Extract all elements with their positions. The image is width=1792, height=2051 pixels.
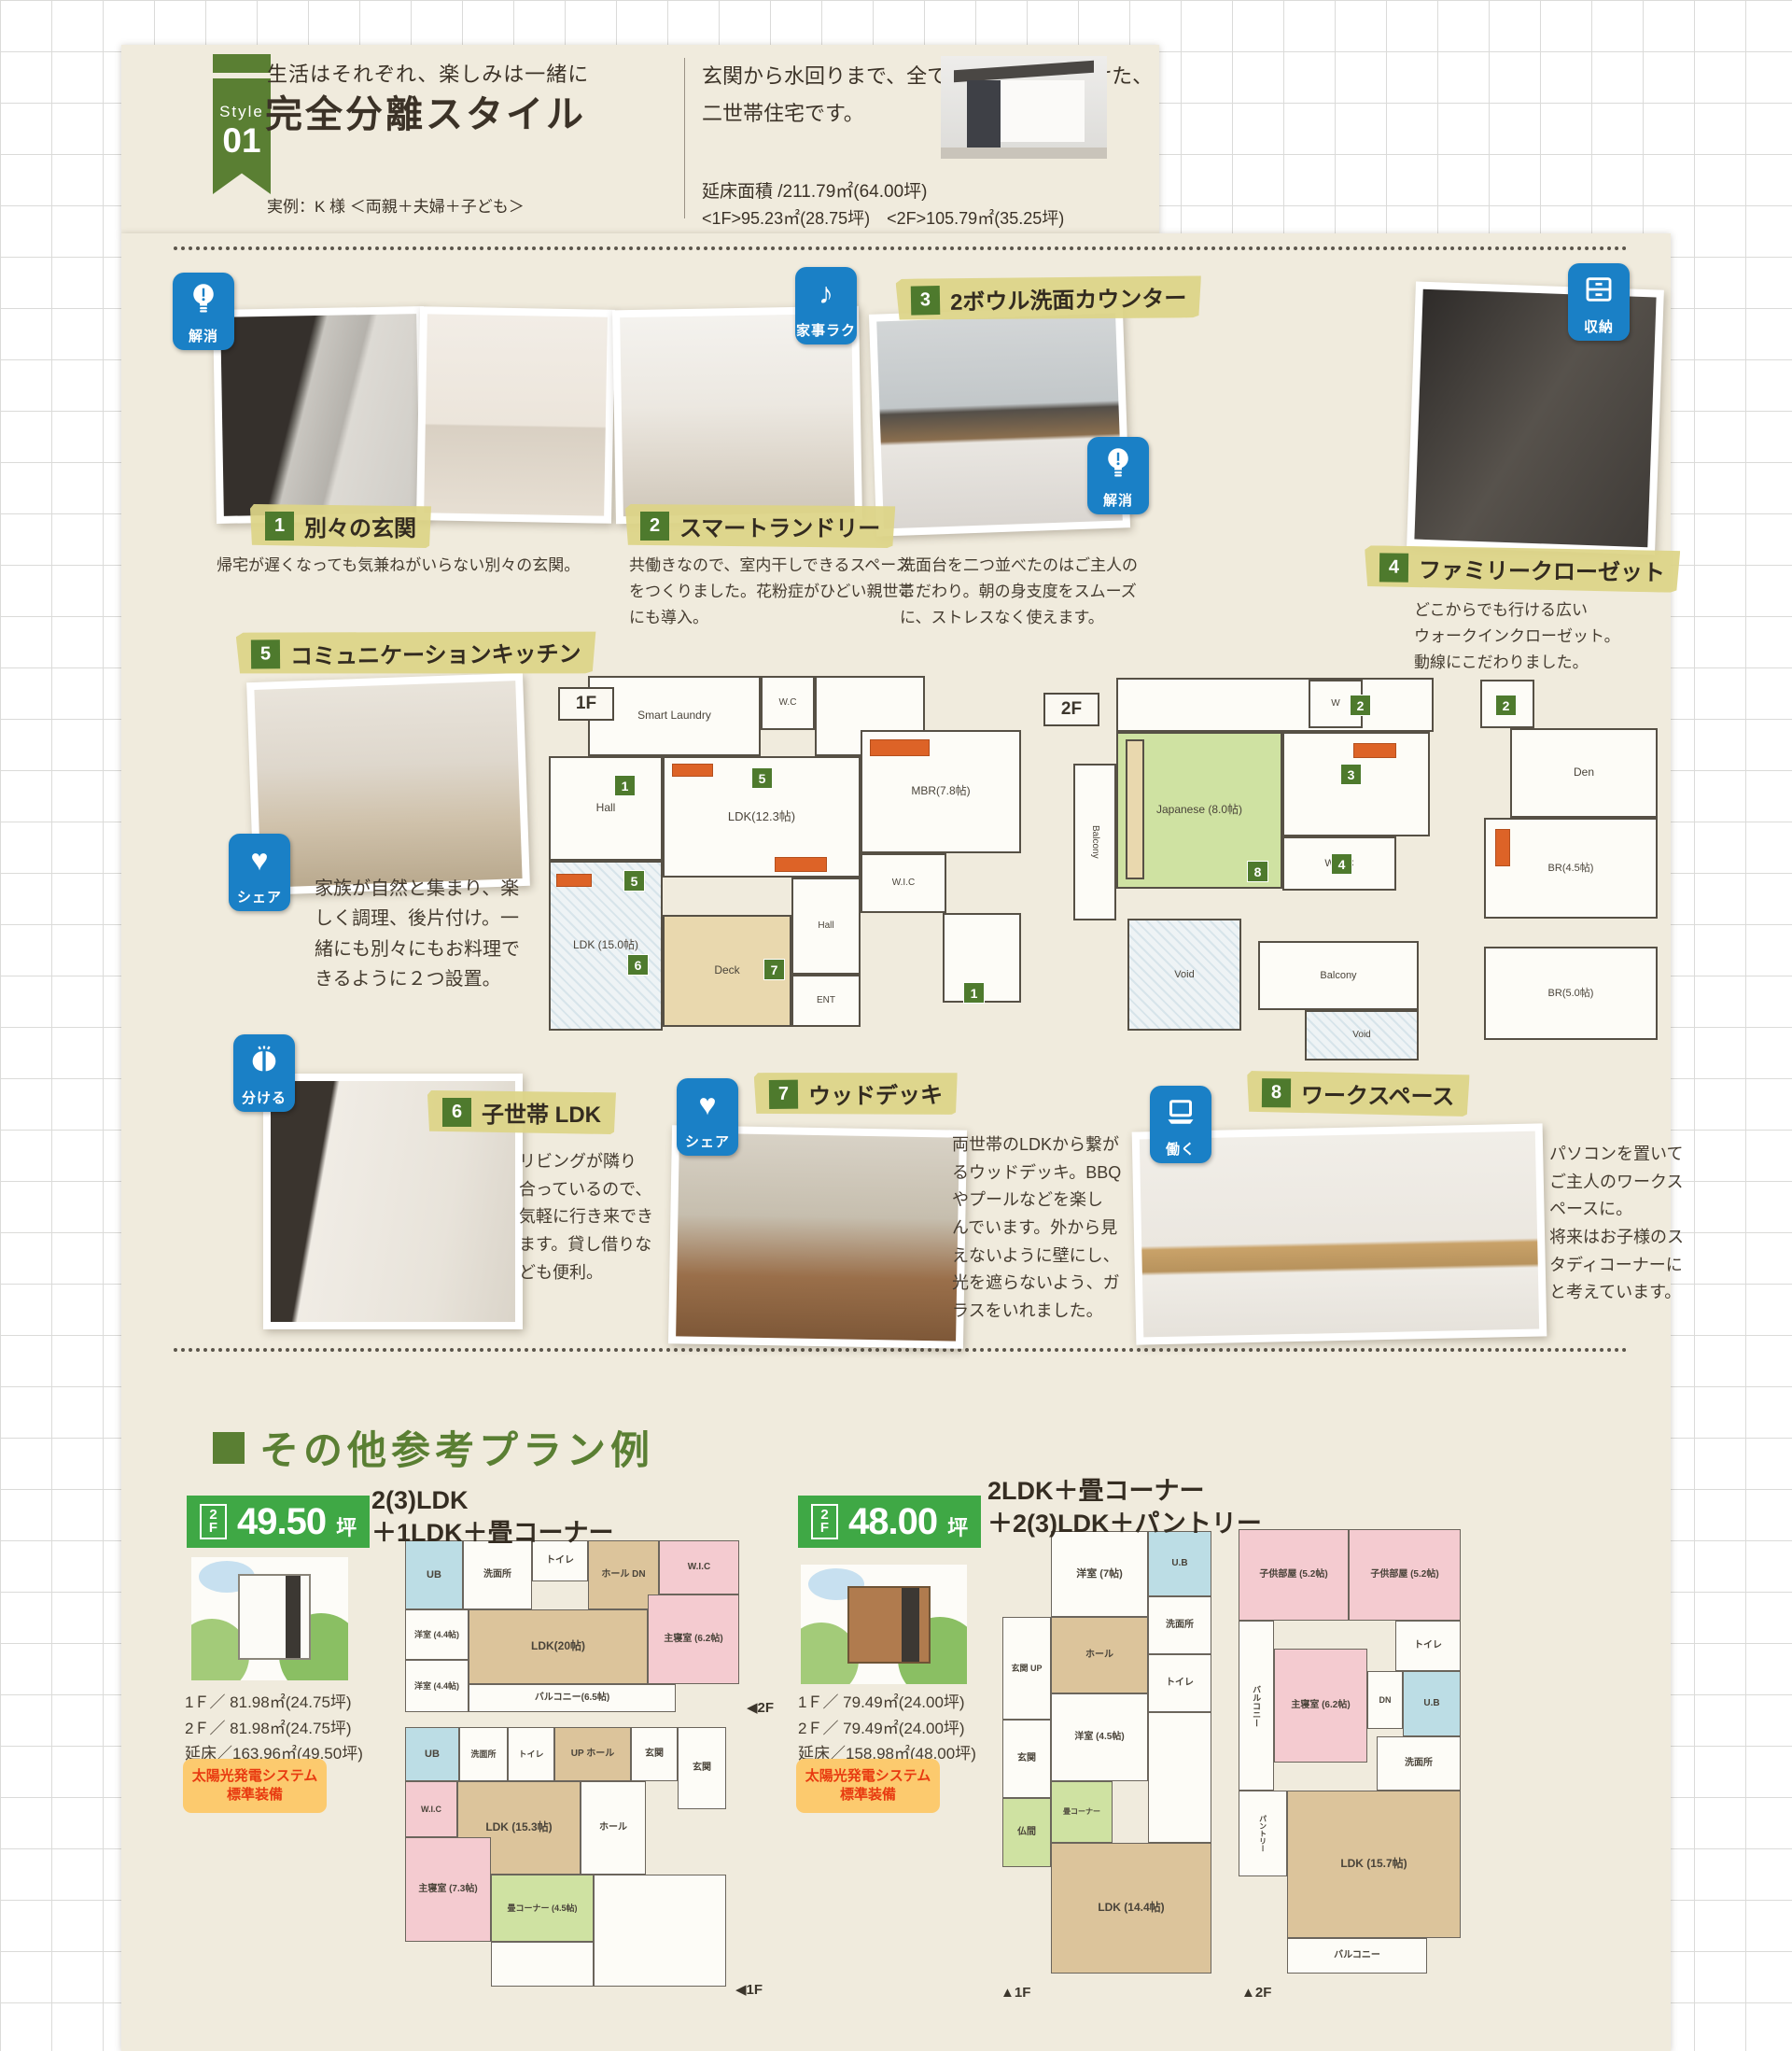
room-U.B: U.B xyxy=(1403,1671,1461,1736)
plan-b-title: 2LDK＋畳コーナー ＋2(3)LDK＋パントリー xyxy=(987,1475,1262,1540)
feature-title: 子世帯 LDK xyxy=(482,1096,601,1129)
room-Hall: Hall xyxy=(791,878,861,975)
header-divider xyxy=(684,58,685,218)
plan-marker-6: 6 xyxy=(627,954,649,976)
room-LDK (15.7帖): LDK (15.7帖) xyxy=(1287,1791,1461,1938)
room-バルコニー(6.5帖): バルコニー(6.5帖) xyxy=(469,1684,676,1712)
page-title: 完全分離スタイル xyxy=(265,84,586,138)
feature-number: 3 xyxy=(911,286,941,316)
photo-entrance-child xyxy=(424,314,608,515)
room-DN: DN xyxy=(1367,1671,1403,1729)
room-玄関: 玄関 xyxy=(678,1727,726,1809)
plan-block xyxy=(1495,829,1510,866)
feature3-kaishou-badge: 解消 xyxy=(1087,437,1149,514)
feature2-label: 2 スマートランドリー xyxy=(625,504,895,548)
room-UB: UB xyxy=(405,1727,459,1781)
room-洗面所: 洗面所 xyxy=(1377,1736,1461,1791)
feature1-kaishou-badge: 解消 xyxy=(173,273,234,350)
plan-marker-5: 5 xyxy=(751,767,773,789)
room-W.I.C: W.I.C xyxy=(861,853,946,913)
feature5-share-badge: ♥ シェア xyxy=(229,834,290,911)
split-icon xyxy=(233,1039,295,1082)
room-洋室 (4.5帖): 洋室 (4.5帖) xyxy=(1051,1693,1148,1781)
room-洋室 (7帖): 洋室 (7帖) xyxy=(1051,1531,1148,1617)
style-ribbon-tab xyxy=(213,54,271,73)
plan-block xyxy=(1148,1712,1211,1843)
feature-title: ワークスペース xyxy=(1301,1076,1455,1110)
room-Balcony: Balcony xyxy=(1258,941,1419,1010)
plan-a-tsubo-badge: 2F 49.50 坪 xyxy=(187,1496,370,1548)
plan-a-1f-floorplan: UB洗面所トイレUP ホール玄関玄関W.I.CLDK (15.3帖)ホール主寝室… xyxy=(403,1725,728,1988)
room-UB: UB xyxy=(405,1540,463,1609)
room-洗面所: 洗面所 xyxy=(459,1727,508,1781)
room-LDK(20帖): LDK(20帖) xyxy=(469,1609,648,1684)
photo-entrance-parent xyxy=(220,314,420,516)
plan-b-2f-floorplan: 子供部屋 (5.2帖)子供部屋 (5.2帖)トイレバルコニー主寝室 (6.2帖)… xyxy=(1237,1527,1463,1977)
feature-title: コミュニケーションキッチン xyxy=(290,635,581,670)
feature-title: ファミリークローゼット xyxy=(1419,552,1665,587)
room-子供部屋 (5.2帖): 子供部屋 (5.2帖) xyxy=(1349,1529,1461,1621)
house-accent-shape xyxy=(967,80,1001,155)
room-玄関: 玄関 xyxy=(631,1727,678,1781)
feature8-hataraku-badge: 働く xyxy=(1150,1086,1211,1163)
door-shape xyxy=(902,1588,919,1662)
feature-number: 7 xyxy=(769,1080,798,1109)
floorplan-2f-label: 2F xyxy=(1043,693,1099,726)
lightbulb-icon xyxy=(1087,442,1149,485)
room-洗面所: 洗面所 xyxy=(463,1540,532,1609)
feature-number: 4 xyxy=(1379,553,1408,582)
feature4-shuunou-badge: 収納 xyxy=(1568,263,1630,341)
plan-b-1f-mark: ▲1F xyxy=(1001,1985,1030,2001)
plan-marker-1: 1 xyxy=(963,982,985,1004)
room-洋室 (4.4帖): 洋室 (4.4帖) xyxy=(405,1660,469,1712)
photo-frame xyxy=(213,306,427,524)
room-玄関: 玄関 xyxy=(1002,1720,1051,1798)
plan-a-1f-mark: ◀1F xyxy=(735,1981,763,1998)
plan-block xyxy=(1126,739,1144,879)
plan-b-tsubo-value: 48.00 xyxy=(848,1501,937,1543)
room-U.B: U.B xyxy=(1148,1531,1211,1596)
room-畳コーナー: 畳コーナー xyxy=(1051,1781,1113,1843)
laptop-icon xyxy=(1150,1090,1211,1133)
feature-number: 5 xyxy=(251,639,280,668)
plan-a-tsubo-unit: 坪 xyxy=(336,1511,357,1541)
badge-label: 働く xyxy=(1166,1139,1196,1159)
badge-label: 分ける xyxy=(242,1088,287,1107)
door-shape xyxy=(286,1576,301,1657)
room-Void: Void xyxy=(1305,1010,1419,1061)
room-子供部屋 (5.2帖): 子供部屋 (5.2帖) xyxy=(1239,1529,1349,1621)
house-roof-shape xyxy=(954,61,1094,82)
music-note-icon: ♪ xyxy=(795,272,857,315)
plan-b-areas: 1Ｆ／ 79.49㎡(24.00坪) 2Ｆ／ 79.49㎡(24.00坪) 延床… xyxy=(798,1690,976,1767)
house-shape xyxy=(847,1586,931,1664)
header-floor-areas: <1F>95.23㎡(28.75坪) <2F>105.79㎡(35.25坪) xyxy=(702,205,1064,230)
plan-b-solar-badge: 太陽光発電システム 標準装備 xyxy=(796,1759,940,1813)
feature1-caption: 帰宅が遅くなっても気兼ねがいらない別々の玄関。 xyxy=(217,553,683,579)
badge-label: 解消 xyxy=(1103,490,1133,510)
plan-a-areas: 1Ｆ／ 81.98㎡(24.75坪) 2Ｆ／ 81.98㎡(24.75坪) 延床… xyxy=(185,1690,363,1767)
room-洗面所: 洗面所 xyxy=(1148,1596,1211,1654)
feature6-caption: リビングが隣り 合っているので、 気軽に行き来でき ます。貸し借りな ども便利。 xyxy=(519,1148,687,1286)
plan-marker-7: 7 xyxy=(763,959,785,980)
room-主寝室 (7.3帖): 主寝室 (7.3帖) xyxy=(405,1837,491,1942)
badge-label: シェア xyxy=(685,1131,730,1151)
section-heading: その他参考プラン例 xyxy=(213,1419,654,1476)
feature5-caption: 家族が自然と集まり、楽 しく調理、後片付け。一 緒にも別々にもお料理で きるよう… xyxy=(315,874,613,995)
dotted-divider-top xyxy=(174,246,1628,250)
heading-square-icon xyxy=(213,1432,245,1464)
room-バルコニー: バルコニー xyxy=(1239,1621,1274,1791)
plan-block xyxy=(1116,678,1434,732)
ribbon-style-word: Style xyxy=(213,103,271,121)
feature-title: スマートランドリー xyxy=(679,510,880,542)
room-主寝室 (6.2帖): 主寝室 (6.2帖) xyxy=(648,1594,739,1684)
feature-title: 2ボウル洗面カウンター xyxy=(950,279,1187,316)
room-W.C: W.C xyxy=(761,676,815,730)
room-玄関 UP: 玄関 UP xyxy=(1002,1617,1051,1720)
room-Void: Void xyxy=(1127,919,1241,1031)
plan-block xyxy=(491,1942,594,1987)
dotted-divider-bottom xyxy=(174,1348,1628,1352)
heart-icon: ♥ xyxy=(229,838,290,881)
plan-block xyxy=(672,764,713,777)
feature2-kajiraku-badge: ♪ 家事ラク xyxy=(795,267,857,344)
plan-b-area-1f: 1Ｆ／ 79.49㎡(24.00坪) xyxy=(798,1690,976,1716)
plan-b-1f-floorplan: 洋室 (7帖)U.B洗面所玄関 UPホールトイレ玄関仏間洋室 (4.5帖)畳コー… xyxy=(1001,1529,1213,1975)
plan-b-2f-mark: ▲2F xyxy=(1241,1985,1271,2001)
room-バルコニー: バルコニー xyxy=(1287,1938,1427,1974)
feature1-label: 1 別々の玄関 xyxy=(250,504,431,548)
plan-a-title: 2(3)LDK ＋1LDK＋畳コーナー xyxy=(371,1484,614,1550)
badge-label: 収納 xyxy=(1584,316,1614,336)
badge-label: 家事ラク xyxy=(796,320,856,340)
feature4-caption: どこからでも行ける広い ウォークインクローゼット。 動線にこだわりました。 xyxy=(1414,597,1694,676)
house-ground-shape xyxy=(941,148,1107,159)
photo-wood-deck xyxy=(676,1132,959,1341)
plan-b-house-illustration xyxy=(801,1565,967,1684)
room-ホール: ホール xyxy=(1051,1617,1148,1693)
room-Balcony: Balcony xyxy=(1073,764,1116,920)
room-UP ホール: UP ホール xyxy=(554,1727,631,1781)
badge-label: 解消 xyxy=(189,326,218,345)
room-トイレ: トイレ xyxy=(1395,1621,1461,1671)
plan-marker-4: 4 xyxy=(1331,853,1352,875)
photo-communication-kitchen xyxy=(254,681,522,888)
room-洋室 (4.4帖): 洋室 (4.4帖) xyxy=(405,1609,469,1660)
plan-a-house-illustration xyxy=(191,1557,348,1680)
feature3-caption: 洗面台を二つ並べたのはご主人の こだわり。朝の身支度をスムーズ に、ストレスなく… xyxy=(900,553,1198,631)
room-W.I.C: W.I.C xyxy=(405,1781,457,1837)
floorplan-1f: Smart LaundryW.CHallLDK(12.3帖)MBR(7.8帖)W… xyxy=(541,674,1059,1096)
plan-a-tsubo-value: 49.50 xyxy=(237,1501,326,1543)
ribbon-style-number: 01 xyxy=(213,121,271,162)
feature-number: 2 xyxy=(640,512,669,541)
plan-a-area-1f: 1Ｆ／ 81.98㎡(24.75坪) xyxy=(185,1690,363,1716)
brochure-page: Style 01 生活はそれぞれ、楽しみは一緒に 完全分離スタイル 実例：K 様… xyxy=(0,0,1792,2051)
plan-b-area-2f: 2Ｆ／ 79.49㎡(24.00坪) xyxy=(798,1716,976,1742)
plan-block xyxy=(775,857,827,872)
floorplan-2f: BalconyWWJapanese (8.0帖)W.S.CDenBR(4.5帖)… xyxy=(1073,678,1659,1077)
feature7-caption: 両世帯のLDKから繋が るウッドデッキ。BBQ やプールなどを楽し んでいます。… xyxy=(952,1131,1157,1326)
feature-number: 1 xyxy=(265,512,294,541)
plan-marker-1: 1 xyxy=(614,775,636,796)
plan-a-floor-tag: 2F xyxy=(200,1504,227,1540)
feature4-label: 4 ファミリークローゼット xyxy=(1365,545,1680,593)
plan-marker-3: 3 xyxy=(1340,764,1362,785)
feature7-share-badge: ♥ シェア xyxy=(677,1078,738,1156)
heart-icon: ♥ xyxy=(677,1083,738,1126)
room-BR(5.0帖): BR(5.0帖) xyxy=(1484,947,1658,1040)
section-heading-text: その他参考プラン例 xyxy=(259,1419,654,1476)
feature-number: 8 xyxy=(1262,1078,1291,1107)
storage-chest-icon xyxy=(1568,268,1630,311)
feature2-caption: 共働きなので、室内干しできるスペース をつくりました。花粉症がひどい親世帯 にも… xyxy=(629,553,928,631)
feature-title: 別々の玄関 xyxy=(304,510,416,542)
room-主寝室 (6.2帖): 主寝室 (6.2帖) xyxy=(1274,1649,1367,1763)
room-ENT: ENT xyxy=(791,975,861,1027)
plan-a-2f-mark: ◀2F xyxy=(747,1699,774,1716)
feature6-wakeru-badge: 分ける xyxy=(233,1034,295,1112)
plan-b-tsubo-badge: 2F 48.00 坪 xyxy=(798,1496,981,1548)
plan-marker-8: 8 xyxy=(1247,861,1268,882)
feature-title: ウッドデッキ xyxy=(808,1076,943,1111)
room-トイレ: トイレ xyxy=(1148,1654,1211,1712)
plan-a-solar-badge: 太陽光発電システム 標準装備 xyxy=(183,1759,327,1813)
room-W.I.C: W.I.C xyxy=(659,1540,739,1594)
feature8-label: 8 ワークスペース xyxy=(1247,1071,1470,1117)
room-仏間: 仏間 xyxy=(1002,1798,1051,1867)
plan-a-area-2f: 2Ｆ／ 81.98㎡(24.75坪) xyxy=(185,1716,363,1742)
plan-block xyxy=(1353,743,1396,758)
feature6-label: 6 子世帯 LDK xyxy=(427,1090,616,1134)
plan-block xyxy=(870,739,930,756)
header-total-area: 延床面積 /211.79㎡(64.00坪) xyxy=(702,177,927,203)
photo-frame xyxy=(416,306,615,524)
plan-block xyxy=(594,1875,726,1987)
room-LDK (14.4帖): LDK (14.4帖) xyxy=(1051,1843,1211,1974)
feature7-label: 7 ウッドデッキ xyxy=(754,1071,958,1117)
house-exterior-photo xyxy=(941,56,1107,159)
plan-marker-2: 2 xyxy=(1350,695,1371,716)
room-ホール: ホール xyxy=(581,1781,646,1875)
room-Hall: Hall xyxy=(549,756,663,861)
plan-marker-2: 2 xyxy=(1495,695,1517,716)
floorplan-1f-label: 1F xyxy=(558,687,614,721)
room-Den: Den xyxy=(1510,728,1658,818)
plan-marker-5: 5 xyxy=(623,870,645,892)
photo-double-bowl-counter xyxy=(876,314,1123,529)
header-example: 実例：K 様 ＜両親＋夫婦＋子ども＞ xyxy=(267,193,525,217)
plan-b-tsubo-unit: 坪 xyxy=(947,1511,968,1541)
feature-number: 6 xyxy=(442,1098,471,1127)
photo-frame xyxy=(668,1125,967,1348)
plan-a-2f-floorplan: UB洗面所トイレホール DNW.I.C主寝室 (6.2帖)洋室 (4.4帖)洋室… xyxy=(403,1538,741,1714)
room-畳コーナー (4.5帖): 畳コーナー (4.5帖) xyxy=(491,1875,594,1942)
feature3-label: 3 2ボウル洗面カウンター xyxy=(896,274,1202,323)
house-shape xyxy=(238,1574,311,1659)
feature8-caption: パソコンを置いて ご主人のワークス ペースに。 将来はお子様のス タディコーナー… xyxy=(1549,1141,1713,1307)
lightbulb-icon xyxy=(173,277,234,320)
feature5-label: 5 コミュニケーションキッチン xyxy=(236,629,596,676)
room-パントリー: パントリー xyxy=(1239,1791,1287,1876)
room-トイレ: トイレ xyxy=(508,1727,554,1781)
badge-label: シェア xyxy=(237,887,282,906)
plan-b-floor-tag: 2F xyxy=(811,1504,838,1540)
